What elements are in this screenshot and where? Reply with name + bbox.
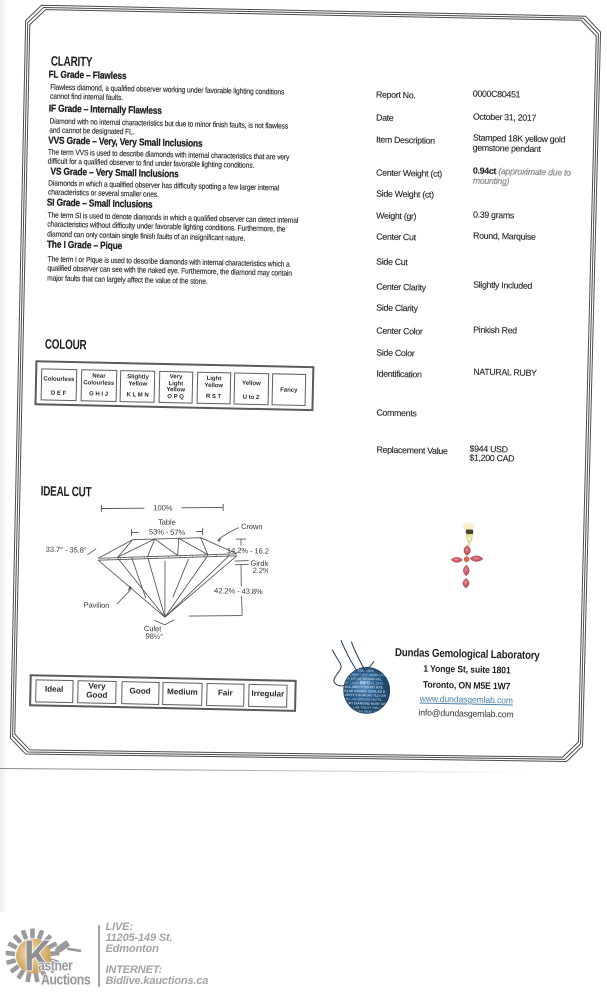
svg-text:14.2% - 16.2%: 14.2% - 16.2% bbox=[226, 546, 269, 556]
svg-text:100%: 100% bbox=[153, 503, 173, 512]
svg-text:Auctions: Auctions bbox=[41, 971, 91, 987]
svg-text:33.7° - 35.8°: 33.7° - 35.8° bbox=[45, 545, 86, 555]
svg-text:Crown: Crown bbox=[240, 522, 262, 531]
svg-text:98½°: 98½° bbox=[145, 632, 163, 641]
svg-text:53% - 57%: 53% - 57% bbox=[148, 527, 185, 537]
svg-text:2.2%: 2.2% bbox=[252, 566, 269, 575]
svg-text:Pavilion: Pavilion bbox=[83, 600, 109, 610]
svg-text:Table: Table bbox=[157, 517, 175, 526]
svg-text:42.2% - 43.8%: 42.2% - 43.8% bbox=[213, 586, 262, 596]
